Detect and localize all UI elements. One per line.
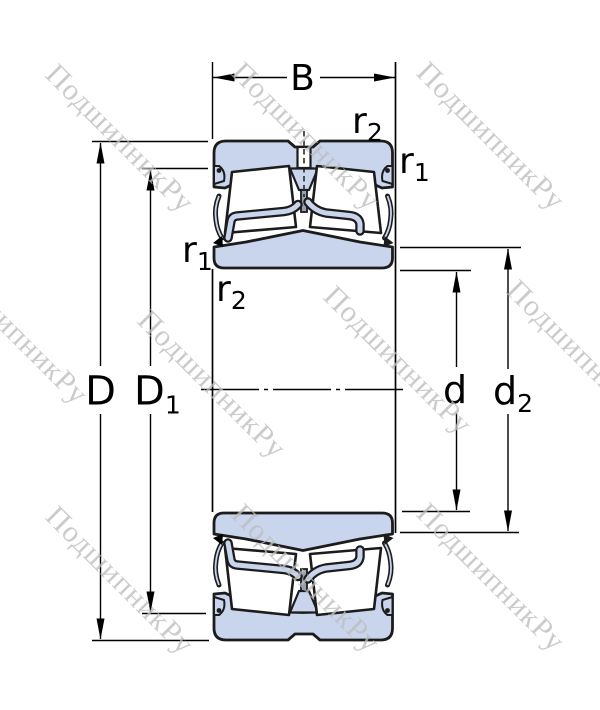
cage-right-prong	[384, 196, 394, 247]
label-r2-top: r2	[352, 101, 383, 147]
inner-ring	[214, 231, 393, 269]
flange-nub-right	[382, 166, 392, 184]
flange-nub-left	[214, 166, 224, 184]
watermark-text: ПодшипникРу	[410, 56, 572, 218]
label-r1-right: r1	[399, 141, 430, 187]
cage-left-prong	[213, 196, 223, 247]
label-d2: d2	[493, 369, 533, 418]
bearing-drawing-page: B D D1 d d2 r2	[0, 0, 600, 710]
roller-left	[225, 166, 296, 233]
label-r1-left: r1	[182, 230, 213, 276]
label-r2-left: r2	[216, 269, 247, 315]
watermark-text: ПодшипникРу	[410, 497, 572, 659]
bearing-cross-section-drawing: B D D1 d d2 r2	[0, 0, 600, 710]
label-D1: D1	[134, 369, 181, 420]
watermark-text: ПодшипникРу	[317, 280, 479, 442]
watermark-text: ПодшипникРу	[0, 250, 95, 412]
watermark-layer: ПодшипникРу ПодшипникРу ПодшипникРу Подш…	[0, 56, 600, 662]
watermark-text: ПодшипникРу	[39, 58, 201, 220]
label-B: B	[290, 58, 315, 99]
watermark-text: ПодшипникРу	[39, 500, 201, 662]
